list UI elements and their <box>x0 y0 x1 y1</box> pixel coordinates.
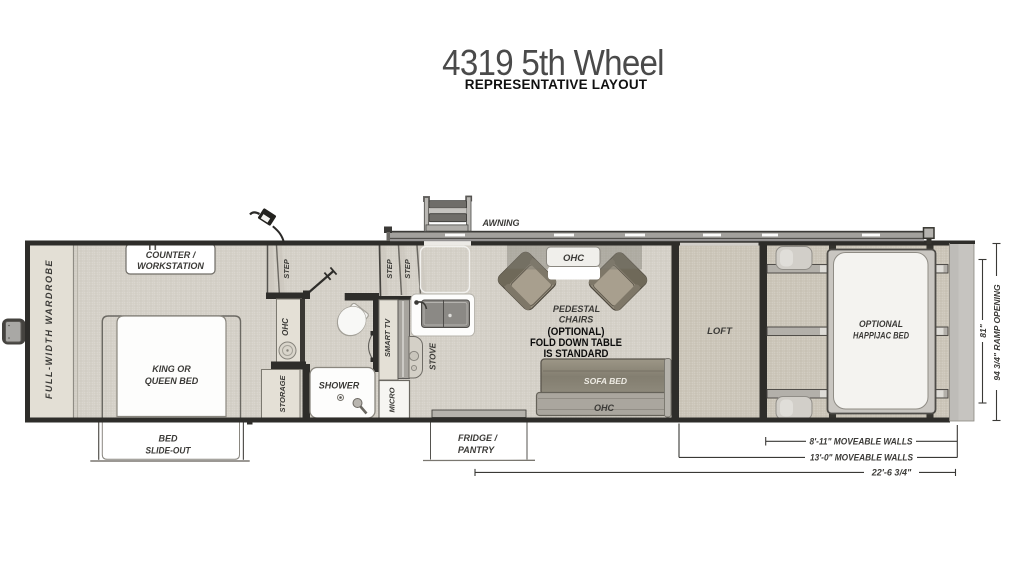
svg-text:QUEEN BED: QUEEN BED <box>145 376 199 386</box>
svg-text:PEDESTAL: PEDESTAL <box>553 304 600 314</box>
svg-text:FRIDGE /: FRIDGE / <box>458 433 499 443</box>
svg-text:94 3/4" RAMP OPENING: 94 3/4" RAMP OPENING <box>992 284 1002 381</box>
svg-text:HAPPIJAC BED: HAPPIJAC BED <box>853 331 910 341</box>
svg-text:STEP: STEP <box>282 258 291 279</box>
svg-text:IS STANDARD: IS STANDARD <box>544 348 609 360</box>
svg-text:OHC: OHC <box>594 403 615 413</box>
svg-text:8'-11" MOVEABLE WALLS: 8'-11" MOVEABLE WALLS <box>810 437 913 447</box>
svg-text:REPRESENTATIVE LAYOUT: REPRESENTATIVE LAYOUT <box>465 77 648 92</box>
svg-text:81": 81" <box>978 323 988 337</box>
svg-text:FULL-WIDTH WARDROBE: FULL-WIDTH WARDROBE <box>44 259 54 399</box>
svg-text:AWNING: AWNING <box>482 218 520 228</box>
svg-text:PANTRY: PANTRY <box>458 445 495 455</box>
svg-text:OHC: OHC <box>281 318 290 336</box>
svg-text:STOVE: STOVE <box>429 342 438 370</box>
svg-text:LOFT: LOFT <box>707 326 733 337</box>
svg-text:SOFA BED: SOFA BED <box>584 376 627 386</box>
svg-text:BED: BED <box>158 434 178 444</box>
svg-text:13'-0" MOVEABLE WALLS: 13'-0" MOVEABLE WALLS <box>810 453 913 463</box>
svg-text:SLIDE-OUT: SLIDE-OUT <box>146 446 192 456</box>
svg-text:COUNTER /: COUNTER / <box>146 250 197 260</box>
svg-text:KING OR: KING OR <box>152 364 191 374</box>
svg-text:OPTIONAL: OPTIONAL <box>859 319 903 329</box>
svg-text:CHAIRS: CHAIRS <box>559 315 594 325</box>
svg-text:MICRO: MICRO <box>388 387 397 412</box>
svg-text:SHOWER: SHOWER <box>319 381 360 391</box>
svg-text:STEP: STEP <box>385 258 394 279</box>
svg-text:OHC: OHC <box>563 253 584 264</box>
svg-text:STEP: STEP <box>403 258 412 279</box>
svg-text:STORAGE: STORAGE <box>278 375 287 413</box>
svg-text:22'-6 3/4": 22'-6 3/4" <box>871 468 912 478</box>
svg-text:SMART TV: SMART TV <box>383 318 392 357</box>
svg-text:WORKSTATION: WORKSTATION <box>137 261 204 271</box>
